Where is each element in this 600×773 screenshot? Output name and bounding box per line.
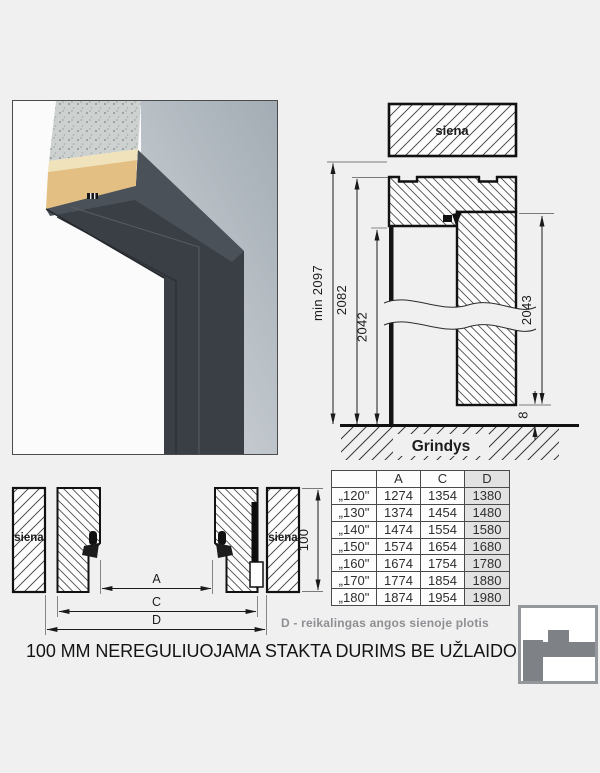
dimension-d: D — [47, 613, 265, 630]
floor-label: Grindys — [412, 438, 471, 455]
brand-logo — [518, 605, 598, 684]
table-row: „170" 1774 1854 1880 — [332, 572, 510, 589]
table-cell-d: 1580 — [465, 521, 510, 538]
seal-wedge-left — [82, 543, 99, 558]
spec-sheet-page: siena Grindys — [0, 0, 600, 773]
gasket-detail — [87, 193, 98, 199]
table-cell-d: 1980 — [465, 589, 510, 606]
wall-block-right — [267, 488, 299, 592]
table-cell-c: 1954 — [421, 589, 465, 606]
wall-label-right: siena — [268, 532, 298, 544]
frame-render-image — [13, 101, 277, 454]
dim-c-label: C — [152, 595, 161, 609]
table-cell-size: „120" — [332, 487, 377, 504]
title-caption: 100 MM NEREGULIUOJAMA STAKTA DURIMS BE U… — [26, 641, 529, 662]
dimension-leaf-height: 2043 — [519, 216, 542, 404]
wall-block-left — [13, 488, 45, 592]
table-cell-d: 1880 — [465, 572, 510, 589]
head-gasket-wedge — [452, 212, 462, 226]
frame-profile-right — [215, 488, 258, 592]
table-cell-c: 1554 — [421, 521, 465, 538]
break-wave-bottom — [384, 322, 536, 332]
frame-photo-panel — [12, 100, 278, 455]
table-row: „140" 1474 1554 1580 — [332, 521, 510, 538]
table-header-cell: A — [377, 471, 421, 488]
table-cell-c: 1354 — [421, 487, 465, 504]
dim-frame-depth-label: 100 — [296, 529, 311, 552]
table-row: „130" 1374 1454 1480 — [332, 504, 510, 521]
dimension-opening-height: 2042 — [355, 230, 378, 424]
table-cell-size: „180" — [332, 589, 377, 606]
table-cell-size: „150" — [332, 538, 377, 555]
table-cell-size: „160" — [332, 555, 377, 572]
vertical-section-drawing: siena Grindys — [310, 104, 579, 460]
frame-head-section — [389, 177, 516, 226]
table-header-cell — [332, 471, 377, 488]
horizontal-section-drawing: siena siena 100 — [13, 488, 323, 635]
dim-leaf-height-label: 2043 — [519, 295, 534, 325]
seal-strip-right — [252, 502, 257, 568]
table-cell-c: 1854 — [421, 572, 465, 589]
seal-wedge-right — [216, 543, 233, 558]
wall-block-top — [389, 104, 516, 156]
dimension-frame-depth: 100 — [296, 490, 318, 590]
table-cell-d: 1780 — [465, 555, 510, 572]
table-row: „180" 1874 1954 1980 — [332, 589, 510, 606]
gasket-slit — [94, 193, 95, 199]
table-header-row: A C D — [332, 471, 510, 488]
gasket-slit — [90, 193, 91, 199]
dim-opening-height-label: 2042 — [355, 312, 370, 342]
break-wave-top — [384, 300, 536, 310]
floor-label-bg — [393, 434, 489, 456]
table-cell-c: 1654 — [421, 538, 465, 555]
table-row: „160" 1674 1754 1780 — [332, 555, 510, 572]
table-cell-a: 1574 — [377, 538, 421, 555]
table-cell-a: 1274 — [377, 487, 421, 504]
dim-d-label: D — [152, 613, 161, 627]
wall-label-top: siena — [435, 123, 469, 138]
table-cell-d: 1680 — [465, 538, 510, 555]
table-cell-a: 1674 — [377, 555, 421, 572]
dimension-a: A — [102, 572, 211, 589]
table-cell-a: 1774 — [377, 572, 421, 589]
dim-frame-height-label: 2082 — [334, 285, 349, 315]
floor-hatch — [341, 427, 559, 460]
table-cell-a: 1374 — [377, 504, 421, 521]
table-cell-size: „130" — [332, 504, 377, 521]
strike-plate — [250, 562, 263, 587]
dim-min-height-label: min 2097 — [310, 265, 325, 321]
break-band — [384, 300, 536, 332]
wall-label-left: siena — [14, 532, 44, 544]
table-cell-c: 1454 — [421, 504, 465, 521]
seal-right — [218, 531, 226, 545]
dimension-c: C — [59, 595, 256, 612]
table-cell-d: 1380 — [465, 487, 510, 504]
table-cell-a: 1874 — [377, 589, 421, 606]
table-cell-a: 1474 — [377, 521, 421, 538]
frame-jamb-edge — [389, 226, 394, 425]
table-cell-c: 1754 — [421, 555, 465, 572]
dim-a-label: A — [152, 572, 161, 586]
table-row: „120" 1274 1354 1380 — [332, 487, 510, 504]
brand-logo-icon — [521, 608, 595, 681]
dim-floor-gap-label: 8 — [516, 411, 531, 419]
table-header-cell: C — [421, 471, 465, 488]
table-cell-d: 1480 — [465, 504, 510, 521]
dimension-floor-gap: 8 — [516, 391, 536, 440]
table-cell-size: „170" — [332, 572, 377, 589]
frame-profile-left — [58, 488, 101, 592]
table-row: „150" 1574 1654 1680 — [332, 538, 510, 555]
size-table: A C D „120" 1274 1354 1380 „130" 1374 14… — [331, 470, 510, 606]
dimension-min-height: min 2097 — [310, 164, 333, 425]
head-gasket — [443, 215, 452, 222]
legend-caption: D - reikalingas angos sienoje plotis — [281, 616, 489, 630]
table-cell-size: „140" — [332, 521, 377, 538]
dimension-frame-height: 2082 — [334, 179, 357, 424]
seal-left — [89, 531, 97, 545]
door-leaf-section — [457, 212, 516, 405]
table-header-cell: D — [465, 471, 510, 488]
